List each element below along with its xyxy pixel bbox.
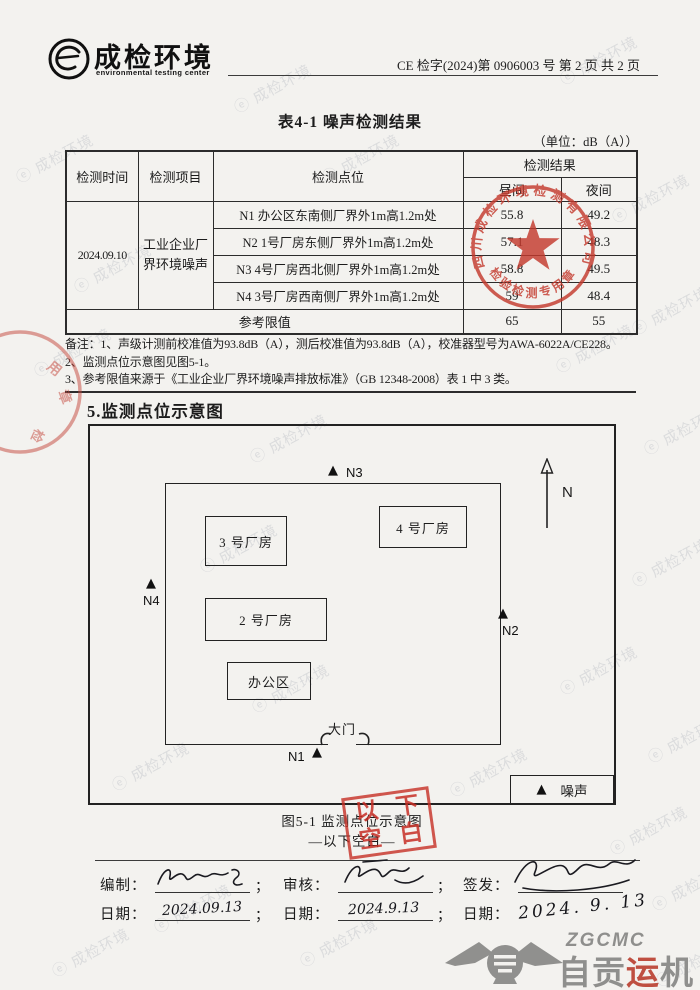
point-cell: N4 3号厂房西南侧厂界外1m高1.2m处	[213, 282, 463, 309]
point-label-n1: N1	[288, 749, 305, 764]
reviewed-label: 审核：	[283, 874, 330, 895]
date-label-reviewed: 日期：	[283, 903, 330, 924]
point-label-n4: N4	[143, 593, 160, 608]
point-cell: N3 4号厂房西北侧厂界外1m高1.2m处	[213, 255, 463, 282]
limit-label: 参考限值	[66, 309, 463, 334]
table-title: 表4-1 噪声检测结果	[0, 110, 700, 132]
doc-number: CE 检字(2024)第 0906003 号 第 2 页 共 2 页	[397, 55, 640, 74]
blank-stamp-char: 白	[398, 820, 424, 849]
noise-point-icon: ▲	[498, 607, 508, 620]
building-4: 4 号厂房	[379, 506, 467, 548]
watermark: ⓔ 成检环境	[628, 533, 700, 592]
separator: ；	[437, 876, 451, 896]
svg-text:检: 检	[28, 427, 47, 445]
watermark: ⓔ 成检环境	[230, 59, 315, 118]
point-label-n2: N2	[502, 623, 519, 638]
section-title: 5.监测点位示意图	[87, 398, 224, 422]
point-cell: N1 办公区东南侧厂界外1m高1.2m处	[213, 201, 463, 228]
prepared-signature	[150, 860, 260, 894]
footer-logo-name: 自贡运机	[558, 946, 694, 990]
point-label-n3: N3	[346, 465, 363, 480]
footer-logo-name-part: 自贡	[558, 956, 626, 990]
note-line: 3、参考限值来源于《工业企业厂界环境噪声排放标准》（GB 12348-2008）…	[65, 371, 636, 389]
blank-stamp-char: 以	[354, 798, 380, 827]
date-label-prepared: 日期：	[100, 903, 147, 924]
watermark: ⓔ 成检环境	[644, 709, 700, 768]
noise-point-icon: ▲	[328, 464, 338, 477]
watermark: ⓔ 成检环境	[628, 281, 700, 340]
building-4-label: 4 号厂房	[396, 518, 450, 537]
watermark: ⓔ 成检环境	[648, 857, 700, 916]
col-header-result: 检测结果	[463, 151, 637, 177]
building-2-label: 2 号厂房	[239, 610, 293, 629]
svg-text:用: 用	[44, 359, 65, 380]
gate-marks-icon	[316, 729, 374, 747]
separator: ；	[255, 905, 269, 925]
prepared-label: 编制：	[100, 874, 147, 895]
office-area-label: 办公区	[248, 672, 290, 691]
col-header-item: 检测项目	[138, 151, 213, 201]
blank-stamp-char: 空	[357, 825, 383, 854]
scanned-report-page: ⓔ 成检环境ⓔ 成检环境ⓔ 成检环境ⓔ 成检环境ⓔ 成检环境ⓔ 成检环境ⓔ 成检…	[0, 0, 700, 990]
company-logo-icon	[46, 36, 92, 82]
north-arrow-icon	[535, 458, 565, 530]
building-3-label: 3 号厂房	[219, 532, 273, 551]
north-label: N	[562, 484, 573, 501]
legend-box: ▲ 噪声	[510, 775, 614, 804]
site-diagram: 3 号厂房 4 号厂房 2 号厂房 办公区 ▲ N3 ▲ N4 ▲ N2 ▲ N…	[88, 424, 616, 805]
footer-emblem-icon	[443, 933, 565, 989]
building-3: 3 号厂房	[205, 516, 287, 566]
svg-text:章: 章	[54, 388, 75, 407]
company-subtitle: environmental testing center	[96, 68, 210, 77]
office-area: 办公区	[227, 662, 311, 700]
legend-label: 噪声	[561, 780, 588, 800]
svg-text:检验检测专用章: 检验检测专用章	[487, 265, 580, 300]
watermark: ⓔ 成检环境	[640, 401, 700, 460]
issued-label: 签发：	[463, 874, 510, 895]
noise-point-icon: ▲	[312, 746, 322, 759]
footer-logo-name-accent: 运	[626, 956, 660, 990]
time-value: 2024.09.10	[66, 201, 138, 309]
seal-star-icon	[506, 219, 559, 270]
noise-point-icon: ▲	[146, 577, 156, 590]
col-header-point: 检测点位	[213, 151, 463, 201]
reviewed-date: 2024.9.13	[348, 900, 420, 918]
unit-note: （单位：dB（A））	[533, 131, 638, 150]
point-cell: N2 1号厂房东侧厂界外1m高1.2m处	[213, 228, 463, 255]
notes-block: 备注：1、声级计测前校准值为93.8dB（A），测后校准值为93.8dB（A），…	[65, 336, 636, 393]
issued-signature	[505, 848, 645, 894]
separator: ；	[437, 905, 451, 925]
building-2: 2 号厂房	[205, 598, 327, 641]
note-line: 备注：1、声级计测前校准值为93.8dB（A），测后校准值为93.8dB（A），…	[65, 336, 636, 354]
seal-bottom-text: 检验检测专用章	[487, 265, 580, 300]
blank-stamp-char: 下	[394, 792, 420, 821]
note-line: 2、监测点位示意图见图5-1。	[65, 354, 636, 372]
header-rule	[228, 75, 658, 76]
date-label-issued: 日期：	[463, 903, 510, 924]
legend-triangle-icon: ▲	[537, 783, 547, 796]
watermark: ⓔ 成检环境	[48, 923, 133, 982]
partial-seal-stamp: 用 章 检	[0, 322, 90, 462]
blank-stamp: 以 下 空 白	[341, 786, 437, 860]
item-value: 工业企业厂界环境噪声	[138, 201, 213, 309]
col-header-time: 检测时间	[66, 151, 138, 201]
footer-logo-name-part: 机	[660, 956, 694, 990]
company-seal-stamp: 四川成检环境检测有限公司 检验检测专用章	[467, 181, 599, 313]
